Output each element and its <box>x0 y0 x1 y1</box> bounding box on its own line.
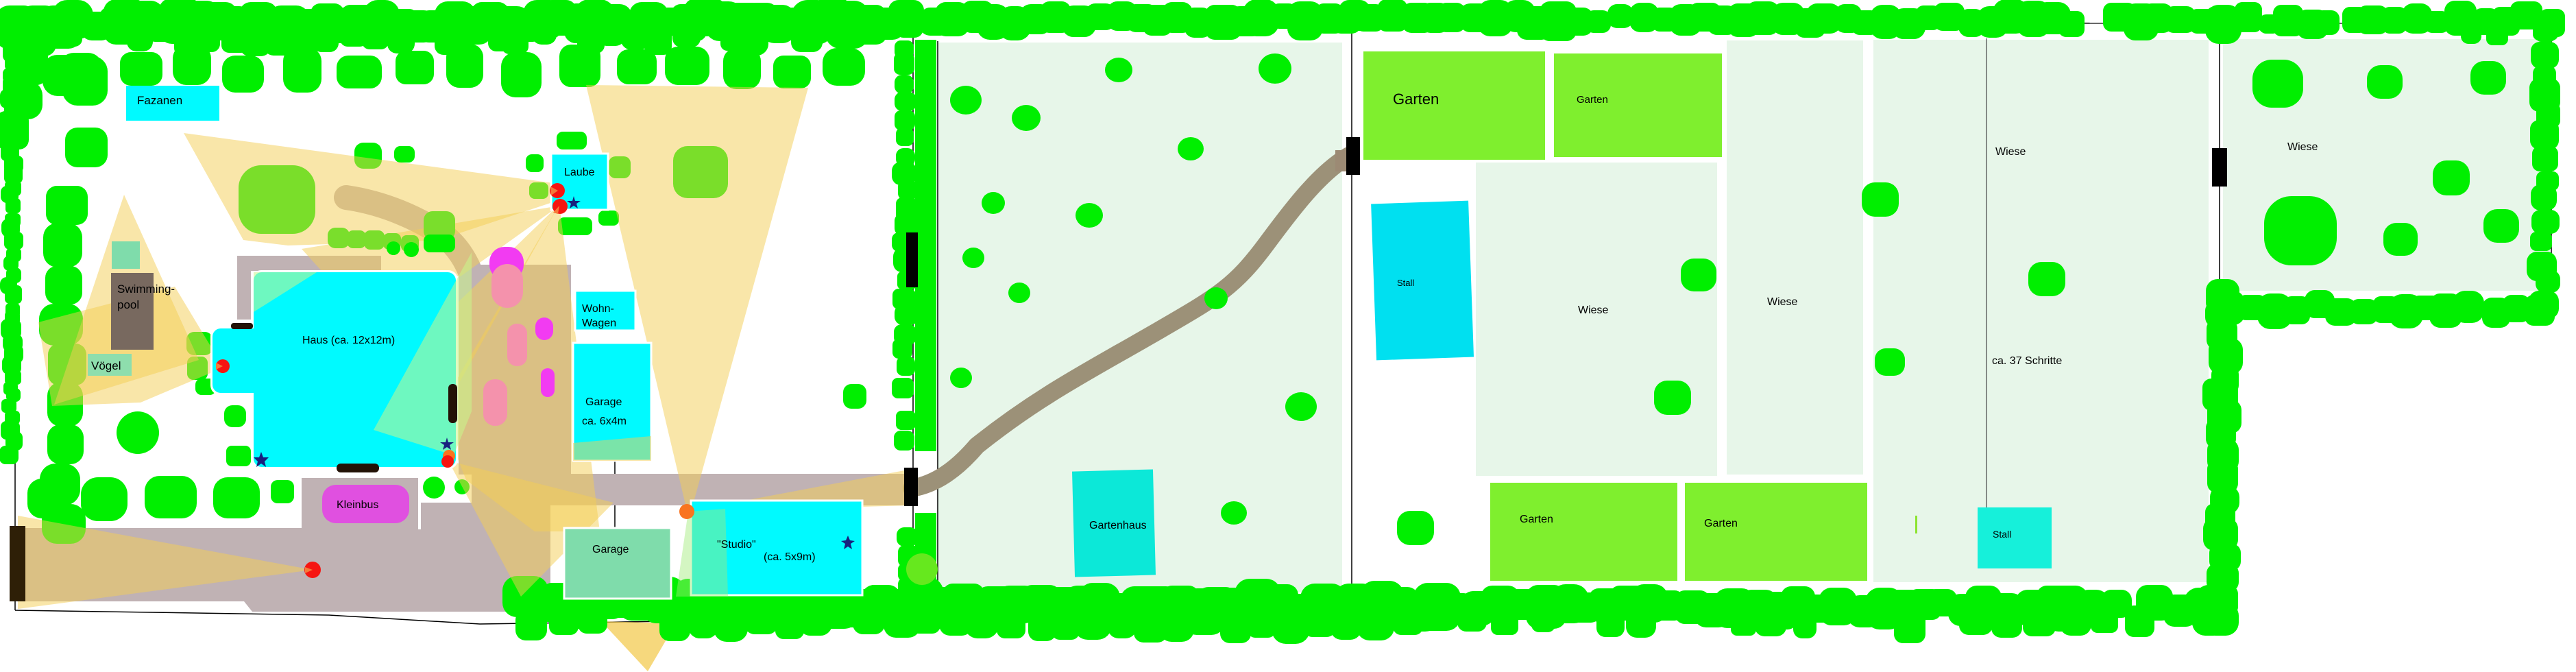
svg-text:Wiese: Wiese <box>1578 304 1609 316</box>
svg-text:Stall: Stall <box>1993 529 2011 540</box>
svg-text:Swimming-: Swimming- <box>117 283 175 296</box>
svg-text:Wagen: Wagen <box>582 317 616 329</box>
svg-text:Garten: Garten <box>1520 514 1553 525</box>
svg-text:Wiese: Wiese <box>1995 146 2026 158</box>
svg-text:Wohn-: Wohn- <box>582 303 614 315</box>
svg-text:Garage: Garage <box>592 544 629 555</box>
svg-text:pool: pool <box>117 298 139 311</box>
svg-text:Kleinbus: Kleinbus <box>337 499 378 511</box>
svg-text:ca. 37 Schritte: ca. 37 Schritte <box>1992 355 2062 367</box>
svg-text:Haus (ca. 12x12m): Haus (ca. 12x12m) <box>302 335 395 346</box>
svg-text:Garage: Garage <box>585 396 622 408</box>
svg-text:Fazanen: Fazanen <box>137 94 182 107</box>
svg-text:Garten: Garten <box>1393 91 1439 108</box>
svg-text:Vögel: Vögel <box>91 359 121 372</box>
svg-text:(ca. 5x9m): (ca. 5x9m) <box>764 551 816 563</box>
svg-text:"Studio": "Studio" <box>717 539 756 551</box>
svg-text:Wiese: Wiese <box>2287 141 2318 153</box>
svg-text:Garten: Garten <box>1704 518 1738 529</box>
svg-text:ca. 6x4m: ca. 6x4m <box>582 416 627 427</box>
svg-text:Wiese: Wiese <box>1767 296 1798 308</box>
svg-text:Gartenhaus: Gartenhaus <box>1089 520 1147 531</box>
svg-text:Laube: Laube <box>564 167 595 178</box>
svg-text:Garten: Garten <box>1577 94 1608 106</box>
svg-text:Stall: Stall <box>1397 278 1414 288</box>
